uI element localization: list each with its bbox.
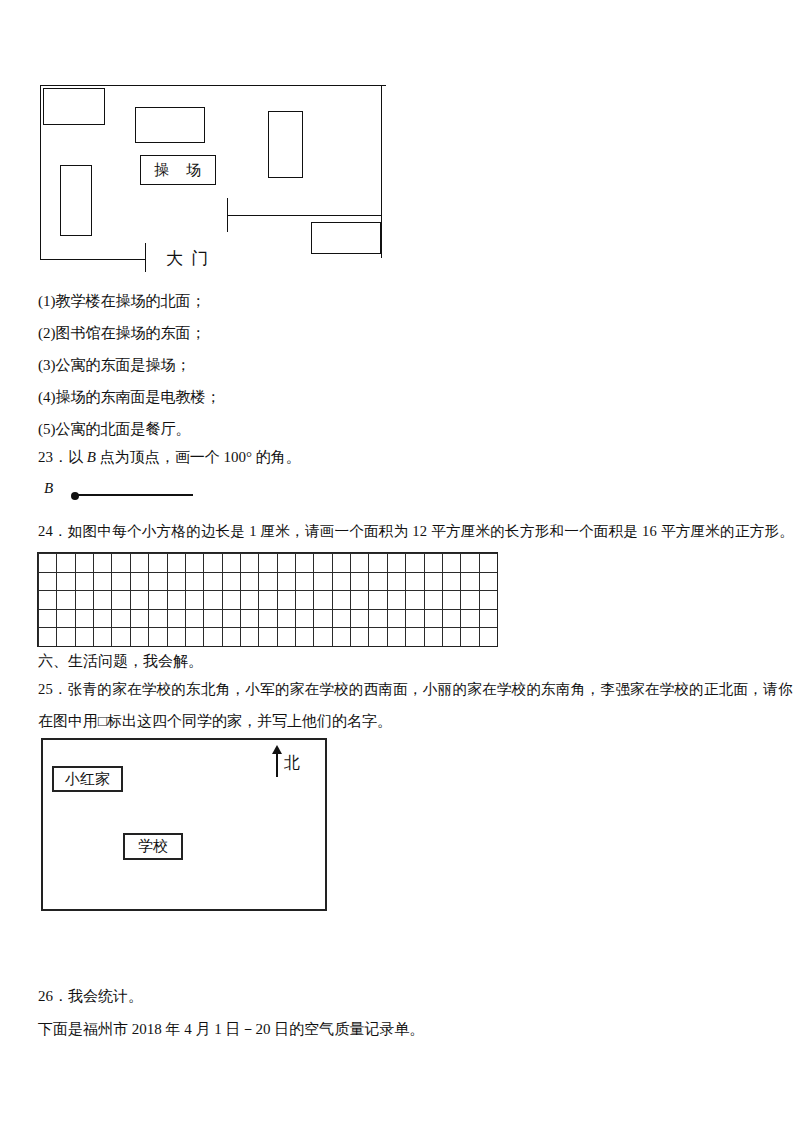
question-25-line1: 25．张青的家在学校的东北角，小军的家在学校的西南面，小丽的家在学校的东南角，李… bbox=[38, 681, 793, 699]
school-map-border-right bbox=[381, 85, 382, 258]
q23-suffix: 点为顶点，画一个 100° 的角。 bbox=[96, 449, 301, 465]
north-label: 北 bbox=[284, 753, 300, 772]
school-map-inner-wall bbox=[227, 215, 382, 216]
statement-1: (1)教学楼在操场的北面； bbox=[38, 292, 206, 310]
school-box: 学校 bbox=[123, 833, 183, 860]
gate-label: 大 门 bbox=[166, 249, 210, 269]
statement-2: (2)图书馆在操场的东面； bbox=[38, 324, 206, 342]
school-label: 学校 bbox=[125, 835, 181, 858]
section-six-heading: 六、生活问题，我会解。 bbox=[38, 652, 203, 670]
question-26-subtext: 下面是福州市 2018 年 4 月 1 日－20 日的空气质量记录单。 bbox=[38, 1020, 424, 1038]
building-box-left bbox=[60, 165, 92, 236]
question-24-text: 24．如图中每个小方格的边长是 1 厘米，请画一个面积为 12 平方厘米的长方形… bbox=[38, 523, 794, 541]
school-map-border-bottom-left bbox=[40, 259, 146, 260]
q23-vertex-letter: B bbox=[87, 449, 96, 465]
centimeter-grid bbox=[37, 552, 498, 647]
statement-3: (3)公寓的东面是操场； bbox=[38, 356, 191, 374]
xiaohong-home-label: 小红家 bbox=[54, 768, 121, 790]
playground-box: 操 场 bbox=[140, 155, 216, 185]
school-map-gate-tick bbox=[145, 243, 146, 272]
statement-4: (4)操场的东南面是电教楼； bbox=[38, 388, 221, 406]
school-map-border-left bbox=[40, 85, 41, 260]
ray-point-label: B bbox=[44, 479, 53, 497]
question-26-heading: 26．我会统计。 bbox=[38, 987, 143, 1005]
playground-label: 操 场 bbox=[141, 156, 215, 184]
question-25-line2: 在图中用□标出这四个同学的家，并写上他们的名字。 bbox=[38, 712, 392, 730]
q23-prefix: 23．以 bbox=[38, 449, 87, 465]
building-box-right bbox=[268, 111, 303, 178]
ray-line bbox=[75, 494, 193, 496]
building-box-bottom-right bbox=[311, 222, 381, 254]
building-box-top-left bbox=[43, 88, 105, 125]
north-arrow-shaft bbox=[276, 752, 278, 777]
question-23-text: 23．以 B 点为顶点，画一个 100° 的角。 bbox=[38, 448, 301, 466]
statement-5: (5)公寓的北面是餐厅。 bbox=[38, 420, 191, 438]
school-map-border-top bbox=[40, 85, 386, 86]
building-box-top-middle bbox=[135, 107, 205, 143]
exam-page: 操 场 大 门 (1)教学楼在操场的北面； (2)图书馆在操场的东面； (3)公… bbox=[0, 0, 794, 1123]
xiaohong-home-box: 小红家 bbox=[52, 766, 123, 792]
